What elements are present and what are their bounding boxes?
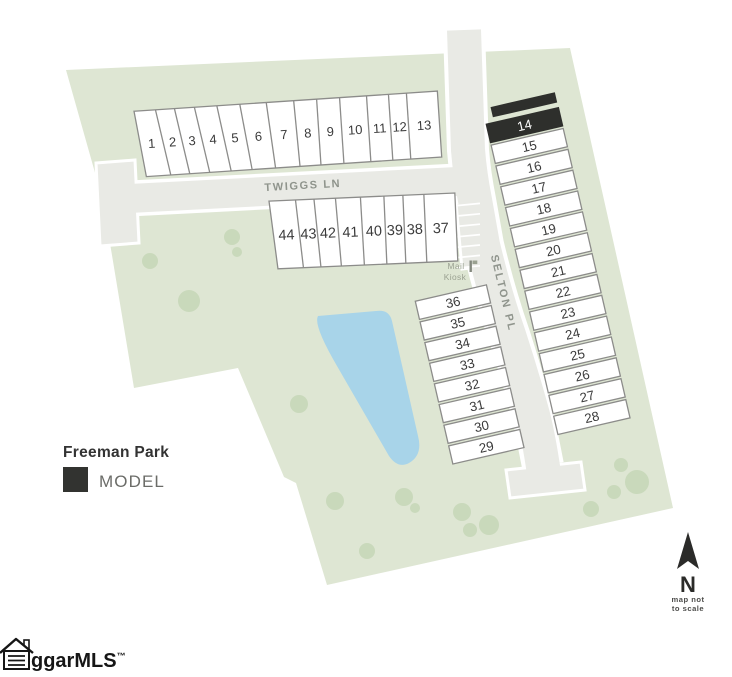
tree-icon <box>326 492 344 510</box>
lot-2-label: 2 <box>169 134 177 149</box>
lot-43-label: 43 <box>300 226 317 243</box>
watermark-text: ggarMLS™ <box>31 650 126 672</box>
lot-39-label: 39 <box>387 223 404 240</box>
tree-icon <box>453 503 471 521</box>
lot-10-label: 10 <box>348 122 363 138</box>
lot-42-label: 42 <box>320 225 337 242</box>
tree-icon <box>232 247 242 257</box>
scale-note-line1: map not <box>671 595 704 604</box>
mail-kiosk-flag-icon <box>473 261 478 265</box>
lot-12-label: 12 <box>392 119 407 135</box>
mls-watermark: ggarMLS™ <box>0 639 126 672</box>
lot-38-label: 38 <box>406 222 423 239</box>
lot-8-label: 8 <box>304 125 312 140</box>
lot-37-label: 37 <box>432 221 449 238</box>
lot-11-label: 11 <box>372 120 386 136</box>
page-title: Freeman Park <box>63 444 169 461</box>
tree-icon <box>614 458 628 472</box>
tree-icon <box>395 488 413 506</box>
tree-icon <box>290 395 308 413</box>
lot-4-label: 4 <box>209 132 217 147</box>
inner-row-lots: 4443424140393837 <box>269 193 458 269</box>
lot-13-label: 13 <box>416 117 431 133</box>
tree-icon <box>224 229 240 245</box>
lot-44-label: 44 <box>278 227 295 244</box>
lot-9-label: 9 <box>326 124 334 139</box>
lot-1-label: 1 <box>148 136 156 151</box>
lot-3-label: 3 <box>188 133 196 148</box>
site-plan-map: 1234567891011121344434241403938373635343… <box>0 0 732 677</box>
compass: N map not to scale <box>671 532 704 613</box>
lot-6-label: 6 <box>254 129 262 144</box>
north-label: N <box>680 572 696 597</box>
mail-kiosk-label-line2: Kiosk <box>444 272 467 282</box>
tree-icon <box>142 253 158 269</box>
tree-icon <box>479 515 499 535</box>
lot-40-label: 40 <box>366 223 383 240</box>
tree-icon <box>178 290 200 312</box>
tree-icon <box>463 523 477 537</box>
mail-kiosk-post-icon <box>470 261 472 273</box>
scale-note-line2: to scale <box>672 604 704 613</box>
mail-kiosk-label-line1: Mail <box>448 261 465 271</box>
legend: Freeman Park MODEL <box>63 444 169 492</box>
tree-icon <box>410 503 420 513</box>
tree-icon <box>583 501 599 517</box>
model-legend-label: MODEL <box>99 472 165 491</box>
tree-icon <box>359 543 375 559</box>
tree-icon <box>607 485 621 499</box>
lot-7-label: 7 <box>280 127 288 142</box>
lot-5-label: 5 <box>231 130 239 145</box>
north-arrow-icon <box>677 532 699 569</box>
lot-41-label: 41 <box>342 224 359 241</box>
tree-icon <box>625 470 649 494</box>
model-legend-swatch <box>63 467 88 492</box>
